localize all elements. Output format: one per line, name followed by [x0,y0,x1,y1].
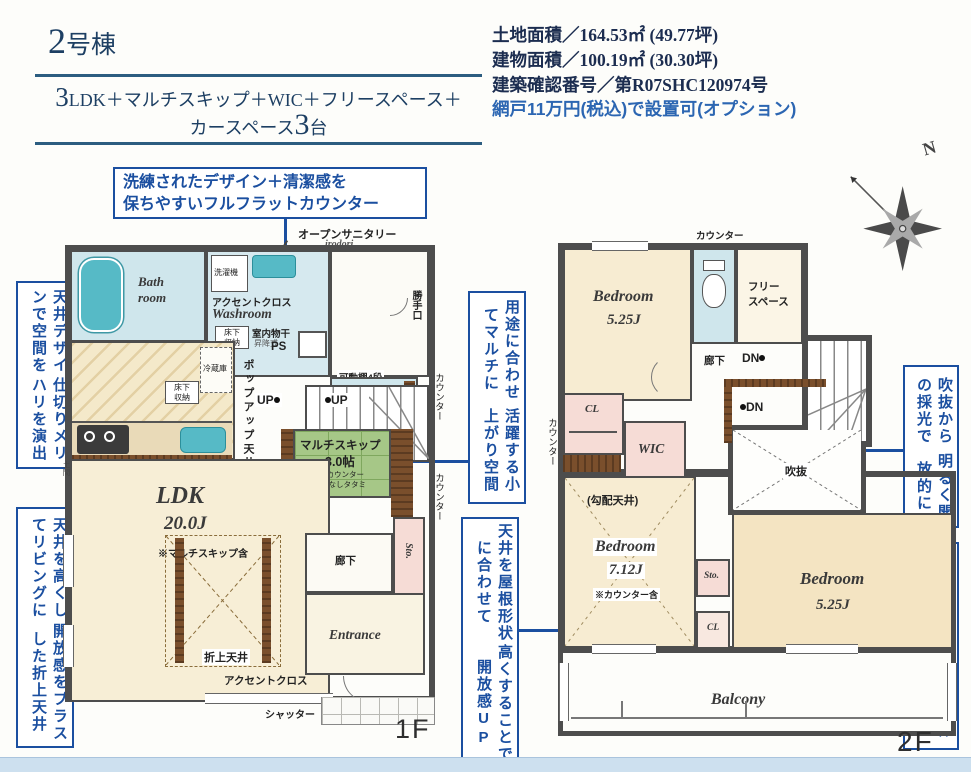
compass-north-label: N [920,137,938,161]
layout2-pre: カースペース [190,118,295,138]
stairs-2f [808,341,866,441]
room-bedroom2: (勾配天井) Bedroom 7.12J ※カウンター含 [563,476,696,648]
callout-roof-ceiling: 天井を屋根形状に合わせて 高くすることで開放感UP [461,517,519,770]
back-door-label: 勝手口 [408,290,423,320]
storage-2f-label: Sto. [704,571,719,581]
dn-dot [759,355,765,361]
bathtub-icon [79,258,123,332]
floor-label-1f: 1F [395,714,431,745]
flyer-page: 2号棟 3LDK＋マルチスキップ＋WIC＋フリースペース＋ カースペース3台 土… [0,0,971,772]
entrance-label: Entrance [329,627,381,643]
window [63,625,74,667]
ceiling-beam [175,538,184,663]
layout-rest: LDK＋マルチスキップ＋WIC＋フリースペース＋ [69,90,462,110]
callout-counter: 洗練されたデザイン＋清潔感を 保ちやすいフルフラットカウンター [113,167,427,219]
room-closet1: CL [563,393,624,455]
bedroom3-label: Bedroom [800,569,864,589]
up-text: UP [257,393,274,407]
storage-1f: Sto. [393,517,425,595]
ceiling-beam [262,538,271,663]
bedroom1-size: 5.25J [607,312,641,329]
layout-line2: カースペース3台 [35,108,482,142]
multiskip-wood-right [391,429,413,517]
counter-label-1f-a: カウンター [431,373,445,421]
building-number: 2 [48,21,66,61]
balcony: Balcony [558,648,956,736]
ldk-size: 20.0J [164,513,207,535]
land-area: 土地面積／164.53㎡ (49.77坪) [492,22,718,47]
storage-1f-label: Sto. [403,543,414,559]
balcony-side-opening [947,663,957,721]
callout-line: 天井デザインで空間を [20,287,70,375]
building-title: 2号棟 [48,20,116,62]
window [205,693,333,704]
hanger-rod [569,431,617,433]
callout-line: 用途に合わせてマルチに [472,297,522,402]
rear-entry-hall: 勝手口 [330,250,429,377]
underfloor-label: 床下 [168,383,196,393]
dn-text: DN [742,351,759,365]
shutter-label: シャッター [265,706,315,721]
washroom-label: Washroom [212,306,272,322]
layout2-num: 3 [294,108,309,141]
dn-text: DN [746,400,763,414]
window [592,241,648,251]
balcony-tick [621,701,623,717]
room-bedroom1: Bedroom 5.25J [563,248,692,401]
room-void: 吹抜 [733,430,861,510]
ps-label: PS [271,341,286,353]
room-toilet-2f [692,248,736,344]
up-label-1: UP [255,393,282,407]
dn-label-1: DN [742,351,765,365]
hall-1f: 廊下 [305,533,393,593]
toilet-icon [702,274,726,308]
toilet-tank-icon [703,260,725,271]
popup-ceiling-label: ポップアップ天井 [240,359,256,471]
free-space-line: スペース [748,295,789,310]
underfloor-label: 床下 [218,328,246,338]
fridge-label: 冷蔵庫 [203,363,227,374]
counter-label-2f-left: カウンター [544,418,558,466]
bedroom2-size: 7.12J [607,562,645,579]
callout-counter-line1: 洗練されたデザイン＋清潔感を [123,172,417,194]
dn-label-2: DN [740,400,763,414]
balcony-label: Balcony [711,691,765,709]
accent-cross-bottom-label: アクセントクロス [224,673,307,688]
header-rule-top [35,74,482,77]
balcony-tick [745,701,747,717]
up-text: UP [331,393,348,407]
counter-label-1f-b: カウンター [431,473,445,521]
confirmation-number: 建築確認番号／第R07SHC120974号 [492,72,768,97]
kitchen-sink-icon [180,427,226,453]
bottom-strip [0,757,971,772]
room-wic: WIC [624,421,686,478]
free-space-line: フリー [748,280,789,295]
floorplan-1f: Bath room 洗濯機 アクセントクロス Washroom 床下 収納 室内… [65,245,435,727]
underfloor-storage-box-kitchen: 床下 収納 [165,381,199,404]
room-kitchen: 冷蔵庫 床下 収納 [70,341,235,460]
closet2-label: CL [707,623,719,633]
stair-rail [724,379,826,387]
callout-counter-line2: 保ちやすいフルフラットカウンター [123,194,417,216]
stove-burner [84,431,95,442]
room-free-space: フリー スペース [736,248,803,344]
ldk-label: LDK [156,483,204,510]
door-arc [651,356,693,398]
building-area: 建物面積／100.19㎡ (30.30坪) [492,47,718,72]
sloped-ceiling-label: (勾配天井) [587,492,638,508]
floorplan-2f: Bedroom 5.25J フリー スペース 廊下 DN DN [558,243,960,743]
bathroom-label2: room [138,290,166,306]
bedroom1-label: Bedroom [593,288,653,306]
pipe-space-box [298,331,327,358]
room-ldk: LDK 20.0J ※マルチスキップ含 折上天井 アクセントクロス [70,459,330,702]
closet1-label: CL [585,403,599,415]
balcony-rail-line [571,717,943,719]
room-storage-2f: Sto. [696,559,730,597]
bedroom3-size: 5.25J [816,597,850,614]
bedroom2-note: ※カウンター含 [593,588,660,601]
counter-label-2f-top: カウンター [696,228,744,242]
free-space-label: フリー スペース [748,280,789,309]
room-bedroom3: Bedroom 5.25J [732,513,953,649]
window [786,644,858,654]
coffered-ceiling-label: 折上天井 [202,649,250,665]
screen-door-option: 網戸11万円(税込)で設置可(オプション) [492,96,796,121]
washer-label: 洗濯機 [214,267,238,278]
building-suffix: 号棟 [66,32,116,59]
callout-line: 活躍する小上がり空間 [472,402,522,498]
hall-2f-label: 廊下 [704,353,725,368]
callout-line: 仕切りメリハリを演出 [20,375,70,463]
room-closet2: CL [696,611,730,649]
stove-burner [104,431,115,442]
layout2-suf: 台 [309,118,327,138]
room-bathroom: Bath room [70,250,206,342]
wic-label: WIC [638,441,664,457]
callout-line: 高くすることで開放感UP [465,642,515,764]
floor-label-2f: 2F [897,726,934,758]
void-label: 吹抜 [783,463,809,479]
up-label-2: UP [323,393,350,407]
balcony-side-opening [559,663,569,721]
bathroom-label: Bath [138,274,164,290]
window [592,644,656,654]
bedroom2-label: Bedroom [593,538,657,556]
callout-multi-space: 用途に合わせてマルチに 活躍する小上がり空間 [468,291,526,504]
window [63,535,74,587]
underfloor-label: 収納 [168,393,196,403]
flat-counter-sink-icon [252,255,296,278]
header-rule-bottom [35,142,482,145]
coffered-ceiling-outline [165,535,281,667]
hall-1f-label: 廊下 [335,553,356,568]
counter-2f-left [563,455,621,472]
callout-line: 天井を屋根形状に合わせて [465,523,515,642]
stair-rail [724,387,732,443]
up-dot [274,397,280,403]
